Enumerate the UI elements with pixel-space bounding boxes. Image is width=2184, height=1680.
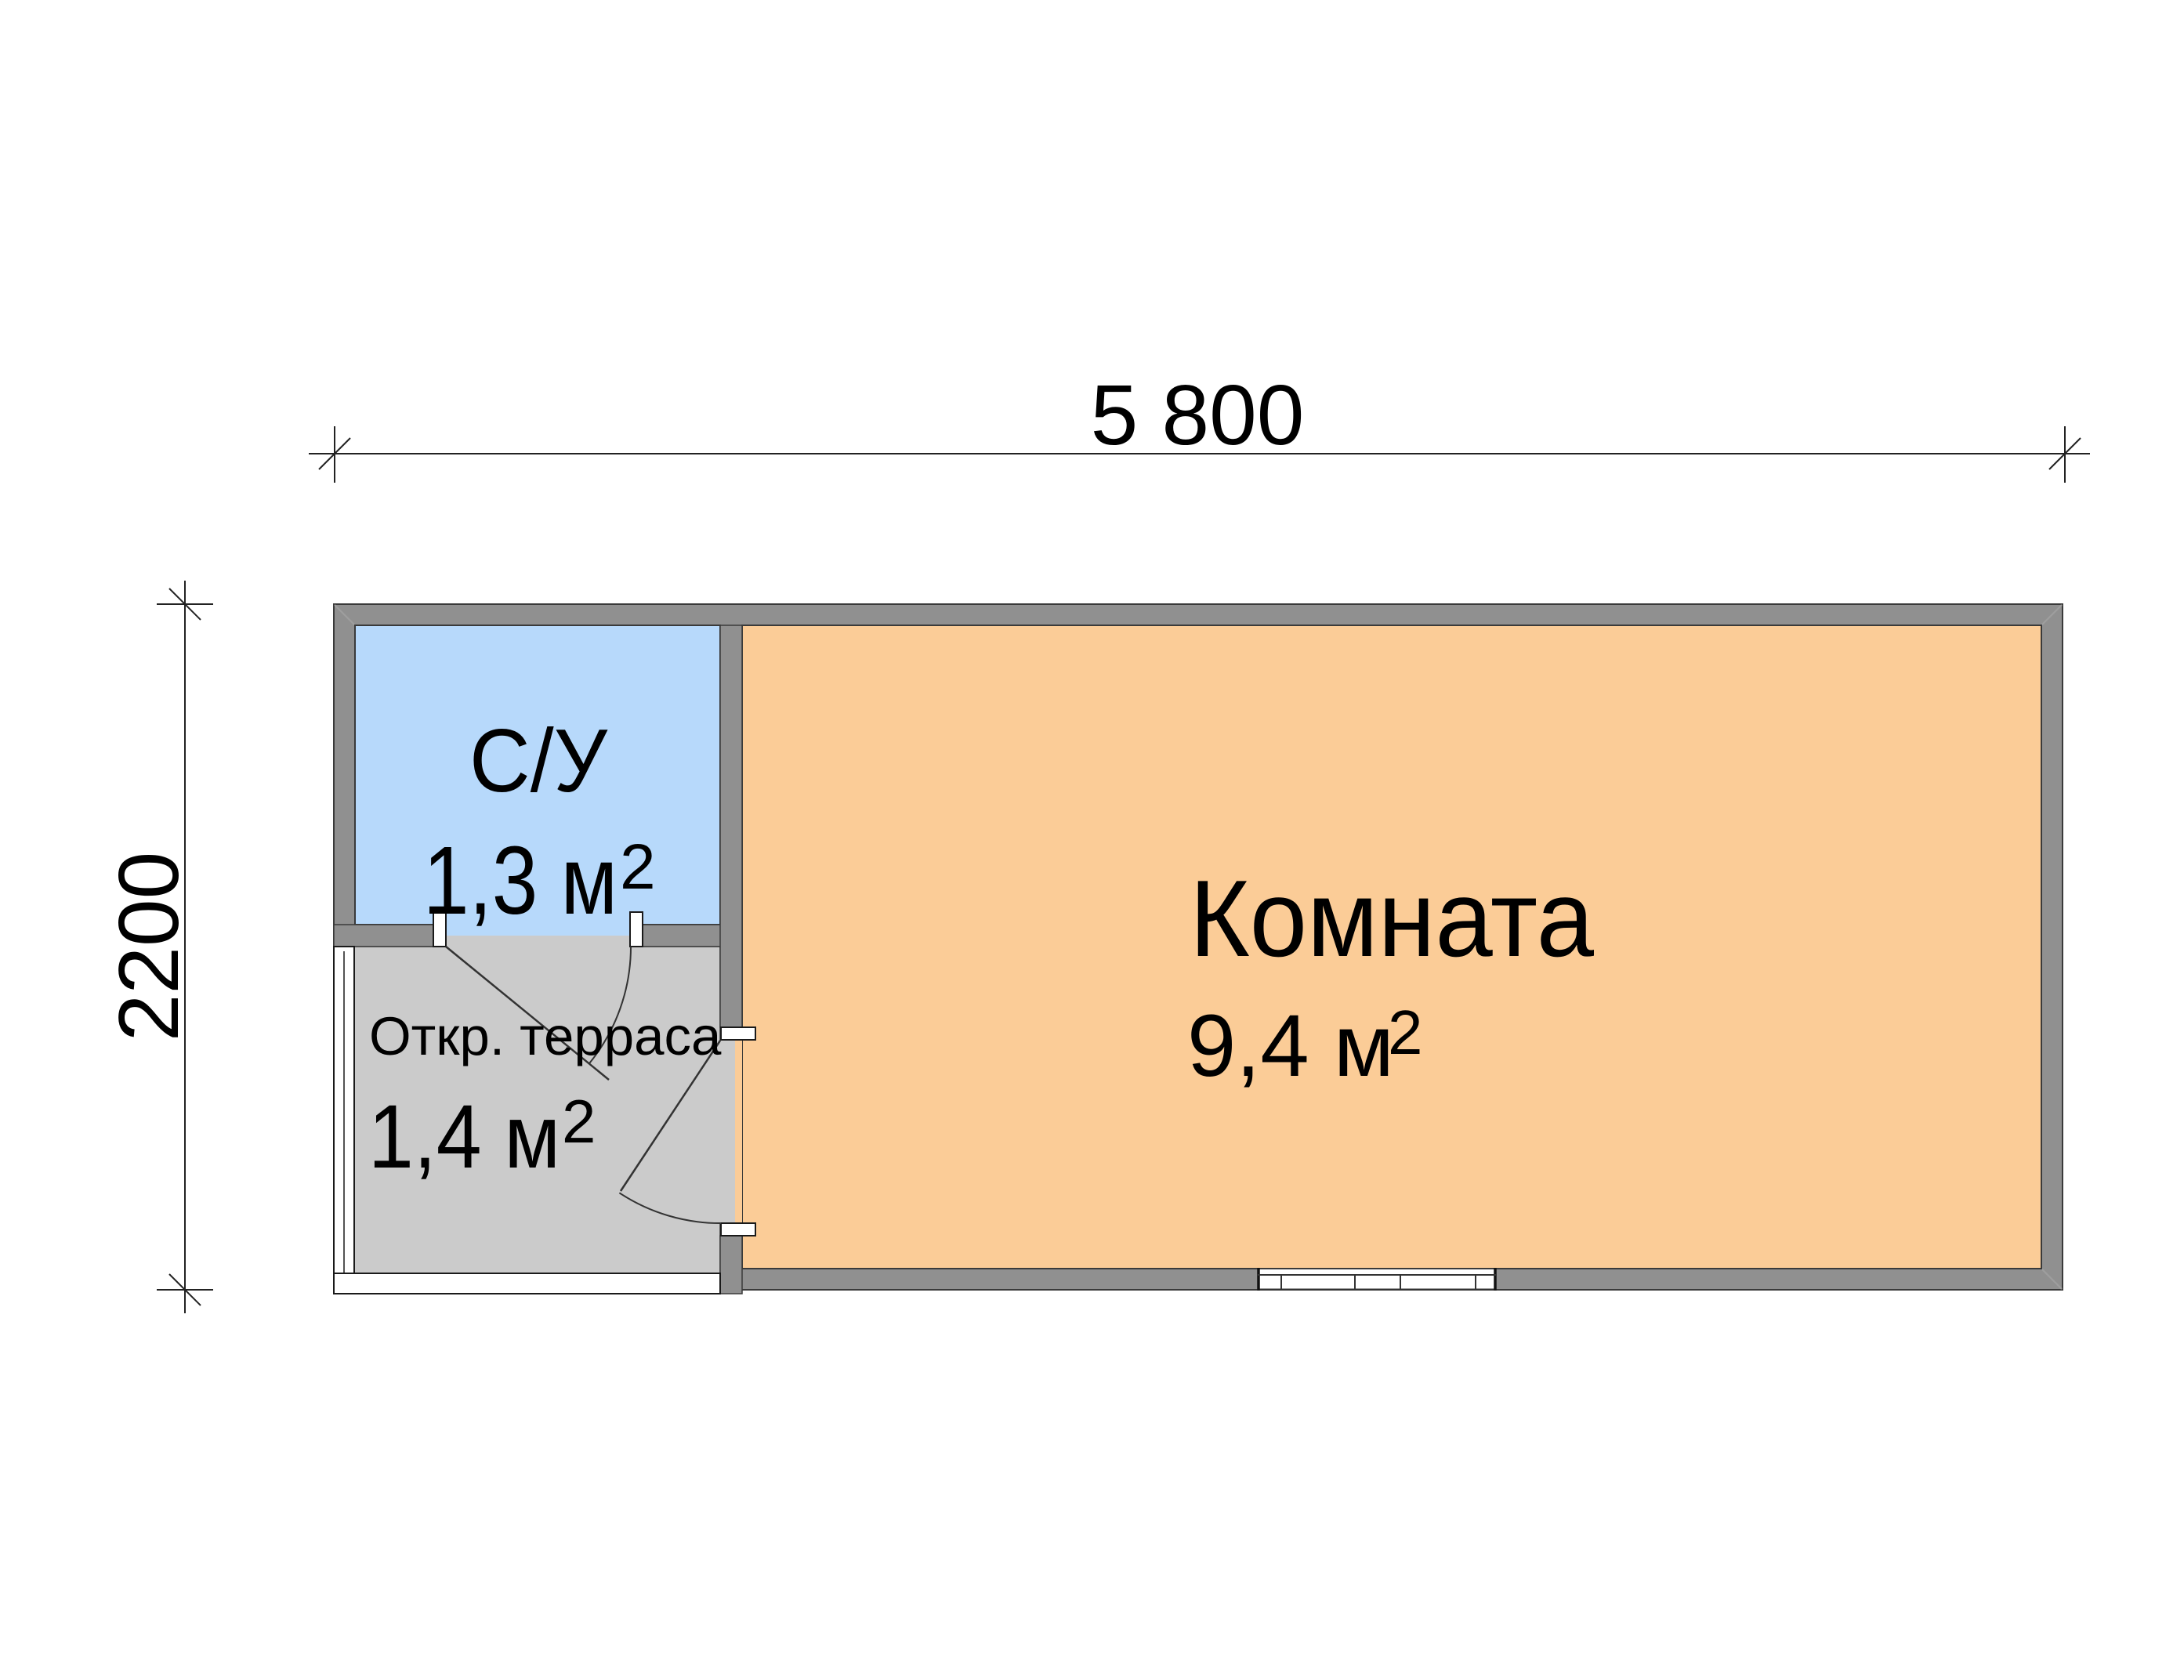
svg-text:Откр. терраса: Откр. терраса [369, 1006, 722, 1066]
svg-text:1,3 м: 1,3 м [423, 827, 618, 935]
svg-text:5 800: 5 800 [1091, 367, 1305, 463]
svg-text:2200: 2200 [101, 852, 197, 1041]
svg-text:С/У: С/У [469, 711, 608, 811]
svg-text:2: 2 [1388, 997, 1423, 1067]
svg-text:1,4 м: 1,4 м [368, 1087, 560, 1187]
svg-text:2: 2 [620, 831, 656, 903]
svg-text:Комната: Комната [1190, 858, 1595, 979]
svg-text:2: 2 [562, 1087, 596, 1156]
svg-text:9,4 м: 9,4 м [1187, 997, 1394, 1095]
